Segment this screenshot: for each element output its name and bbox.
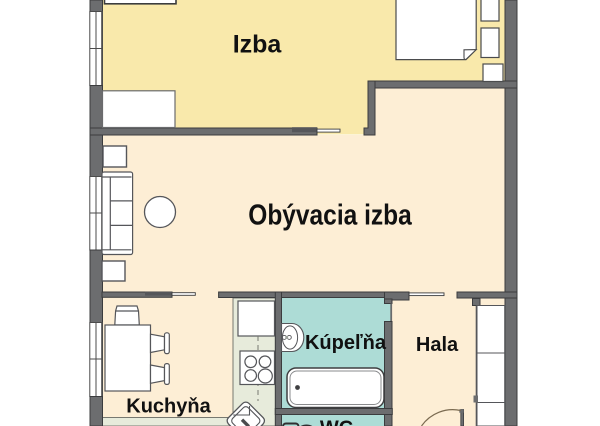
- svg-text:Obývacia izba: Obývacia izba: [248, 200, 412, 232]
- svg-text:Kuchyňa: Kuchyňa: [126, 396, 211, 418]
- svg-text:Hala: Hala: [416, 334, 459, 356]
- svg-text:Kúpeľňa: Kúpeľňa: [305, 332, 387, 354]
- svg-text:WC: WC: [320, 418, 353, 426]
- svg-text:Izba: Izba: [233, 31, 283, 59]
